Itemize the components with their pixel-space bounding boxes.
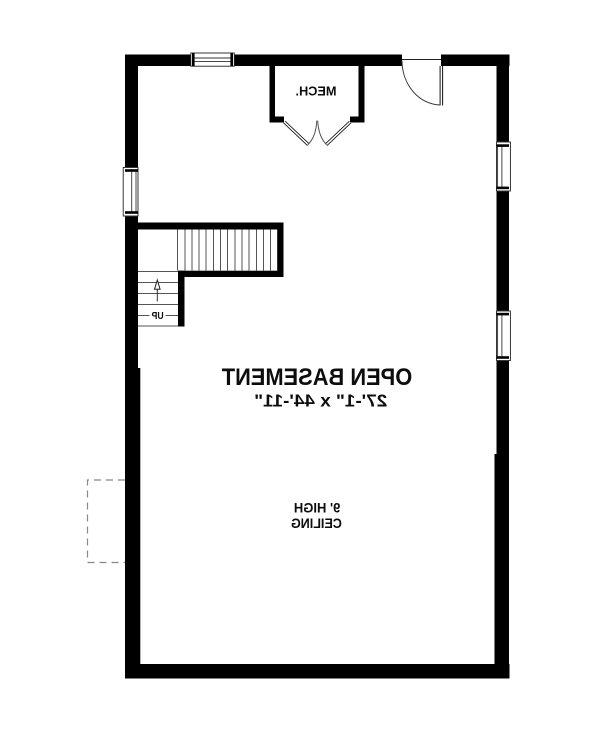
svg-text:UP: UP [151, 311, 163, 322]
svg-text:CEILING: CEILING [291, 516, 342, 531]
svg-text:OPEN BASEMENT: OPEN BASEMENT [221, 364, 412, 391]
svg-text:MECH.: MECH. [296, 83, 337, 98]
svg-text:9' HIGH: 9' HIGH [294, 501, 341, 516]
svg-text:27'-1" x 44'-11": 27'-1" x 44'-11" [254, 390, 387, 410]
